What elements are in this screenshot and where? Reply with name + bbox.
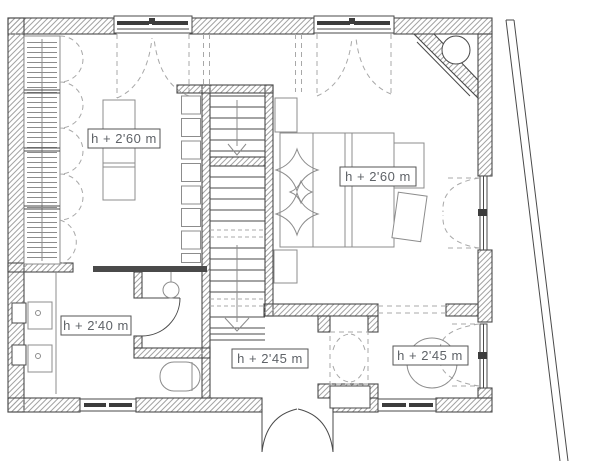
chimney-flue [442,36,470,64]
wall-niche [12,345,26,365]
bed [276,133,394,247]
bathroom-wall-lower [134,336,142,348]
bedroom [274,98,427,283]
wall-top-right [394,18,492,34]
wardrobe-door-arcs [60,36,83,264]
window-top-2 [314,16,394,96]
label-hall-text: h + 2'45 m [237,351,303,366]
dining-top-stub [446,304,478,316]
label-bedroom: h + 2'60 m [340,167,416,186]
floor-plan-canvas: h + 2'60 m h + 2'60 m h + 2'40 m h + 2'4… [0,0,608,464]
bathroom-bottom-wall [134,348,210,358]
label-living: h + 2'60 m [88,129,160,148]
sink [163,282,179,298]
stair-arrow-lower [225,245,249,331]
wall-right-3 [478,388,492,398]
closet-stub-right [368,316,378,332]
label-hall: h + 2'45 m [232,349,308,368]
closet-niche [330,386,370,408]
nightstand-top [275,98,297,132]
wall-top-mid [190,18,314,34]
dining-passage-traces [378,306,446,313]
wall-niche [12,303,26,323]
wall-right-1 [478,34,492,176]
stair-arrow-upper [228,100,246,155]
window-latch-icon [149,18,155,24]
label-laundry-text: h + 2'40 m [63,318,129,333]
window-bottom-right [378,399,436,411]
door-swing-arcs [317,34,391,96]
entrance-door [262,409,333,452]
stair-bottom-edge [210,334,265,340]
toilet [160,362,200,391]
dryer [28,345,52,372]
corner-chimney [414,34,478,98]
label-dining: h + 2'45 m [393,346,468,365]
stair-wall-right [265,85,273,316]
wall-bottom-4 [436,398,492,412]
bathroom-door [142,298,180,336]
wardrobe [24,36,83,264]
washer [28,302,52,329]
label-living-text: h + 2'60 m [91,131,157,146]
hall-closet [330,332,368,384]
floor-plan-page: h + 2'60 m h + 2'60 m h + 2'40 m h + 2'4… [0,0,608,464]
bedroom-bottom-wall [264,304,378,316]
bifold-door-arcs [333,334,365,382]
door-handle-icon [478,209,487,216]
closet-stub-left [318,316,330,332]
living-room [24,36,135,264]
glazed-door-right-bedroom [443,176,487,250]
staircase [182,96,266,340]
wall-bottom-1 [8,398,80,412]
window-latch-icon [349,18,355,24]
door-handle-icon [478,352,487,359]
wall-right-2 [478,250,492,322]
bench [392,192,427,242]
kitchen-counter-bar [93,266,207,272]
wall-bottom-2 [136,398,262,412]
stair-shelving [182,96,201,263]
door-swing-arcs [443,178,479,248]
stair-wall-top [177,85,273,93]
window-bottom-left [80,399,136,411]
bathroom-wall-upper [134,272,142,298]
site-boundary [506,20,568,461]
kitchen-island [103,100,135,200]
label-bedroom-text: h + 2'60 m [345,169,411,184]
stair-landing [210,157,265,166]
label-laundry: h + 2'40 m [61,316,131,335]
label-dining-text: h + 2'45 m [397,348,463,363]
ceiling-beam-traces [204,34,302,92]
nightstand-bottom [274,250,297,283]
bathroom [142,272,200,391]
